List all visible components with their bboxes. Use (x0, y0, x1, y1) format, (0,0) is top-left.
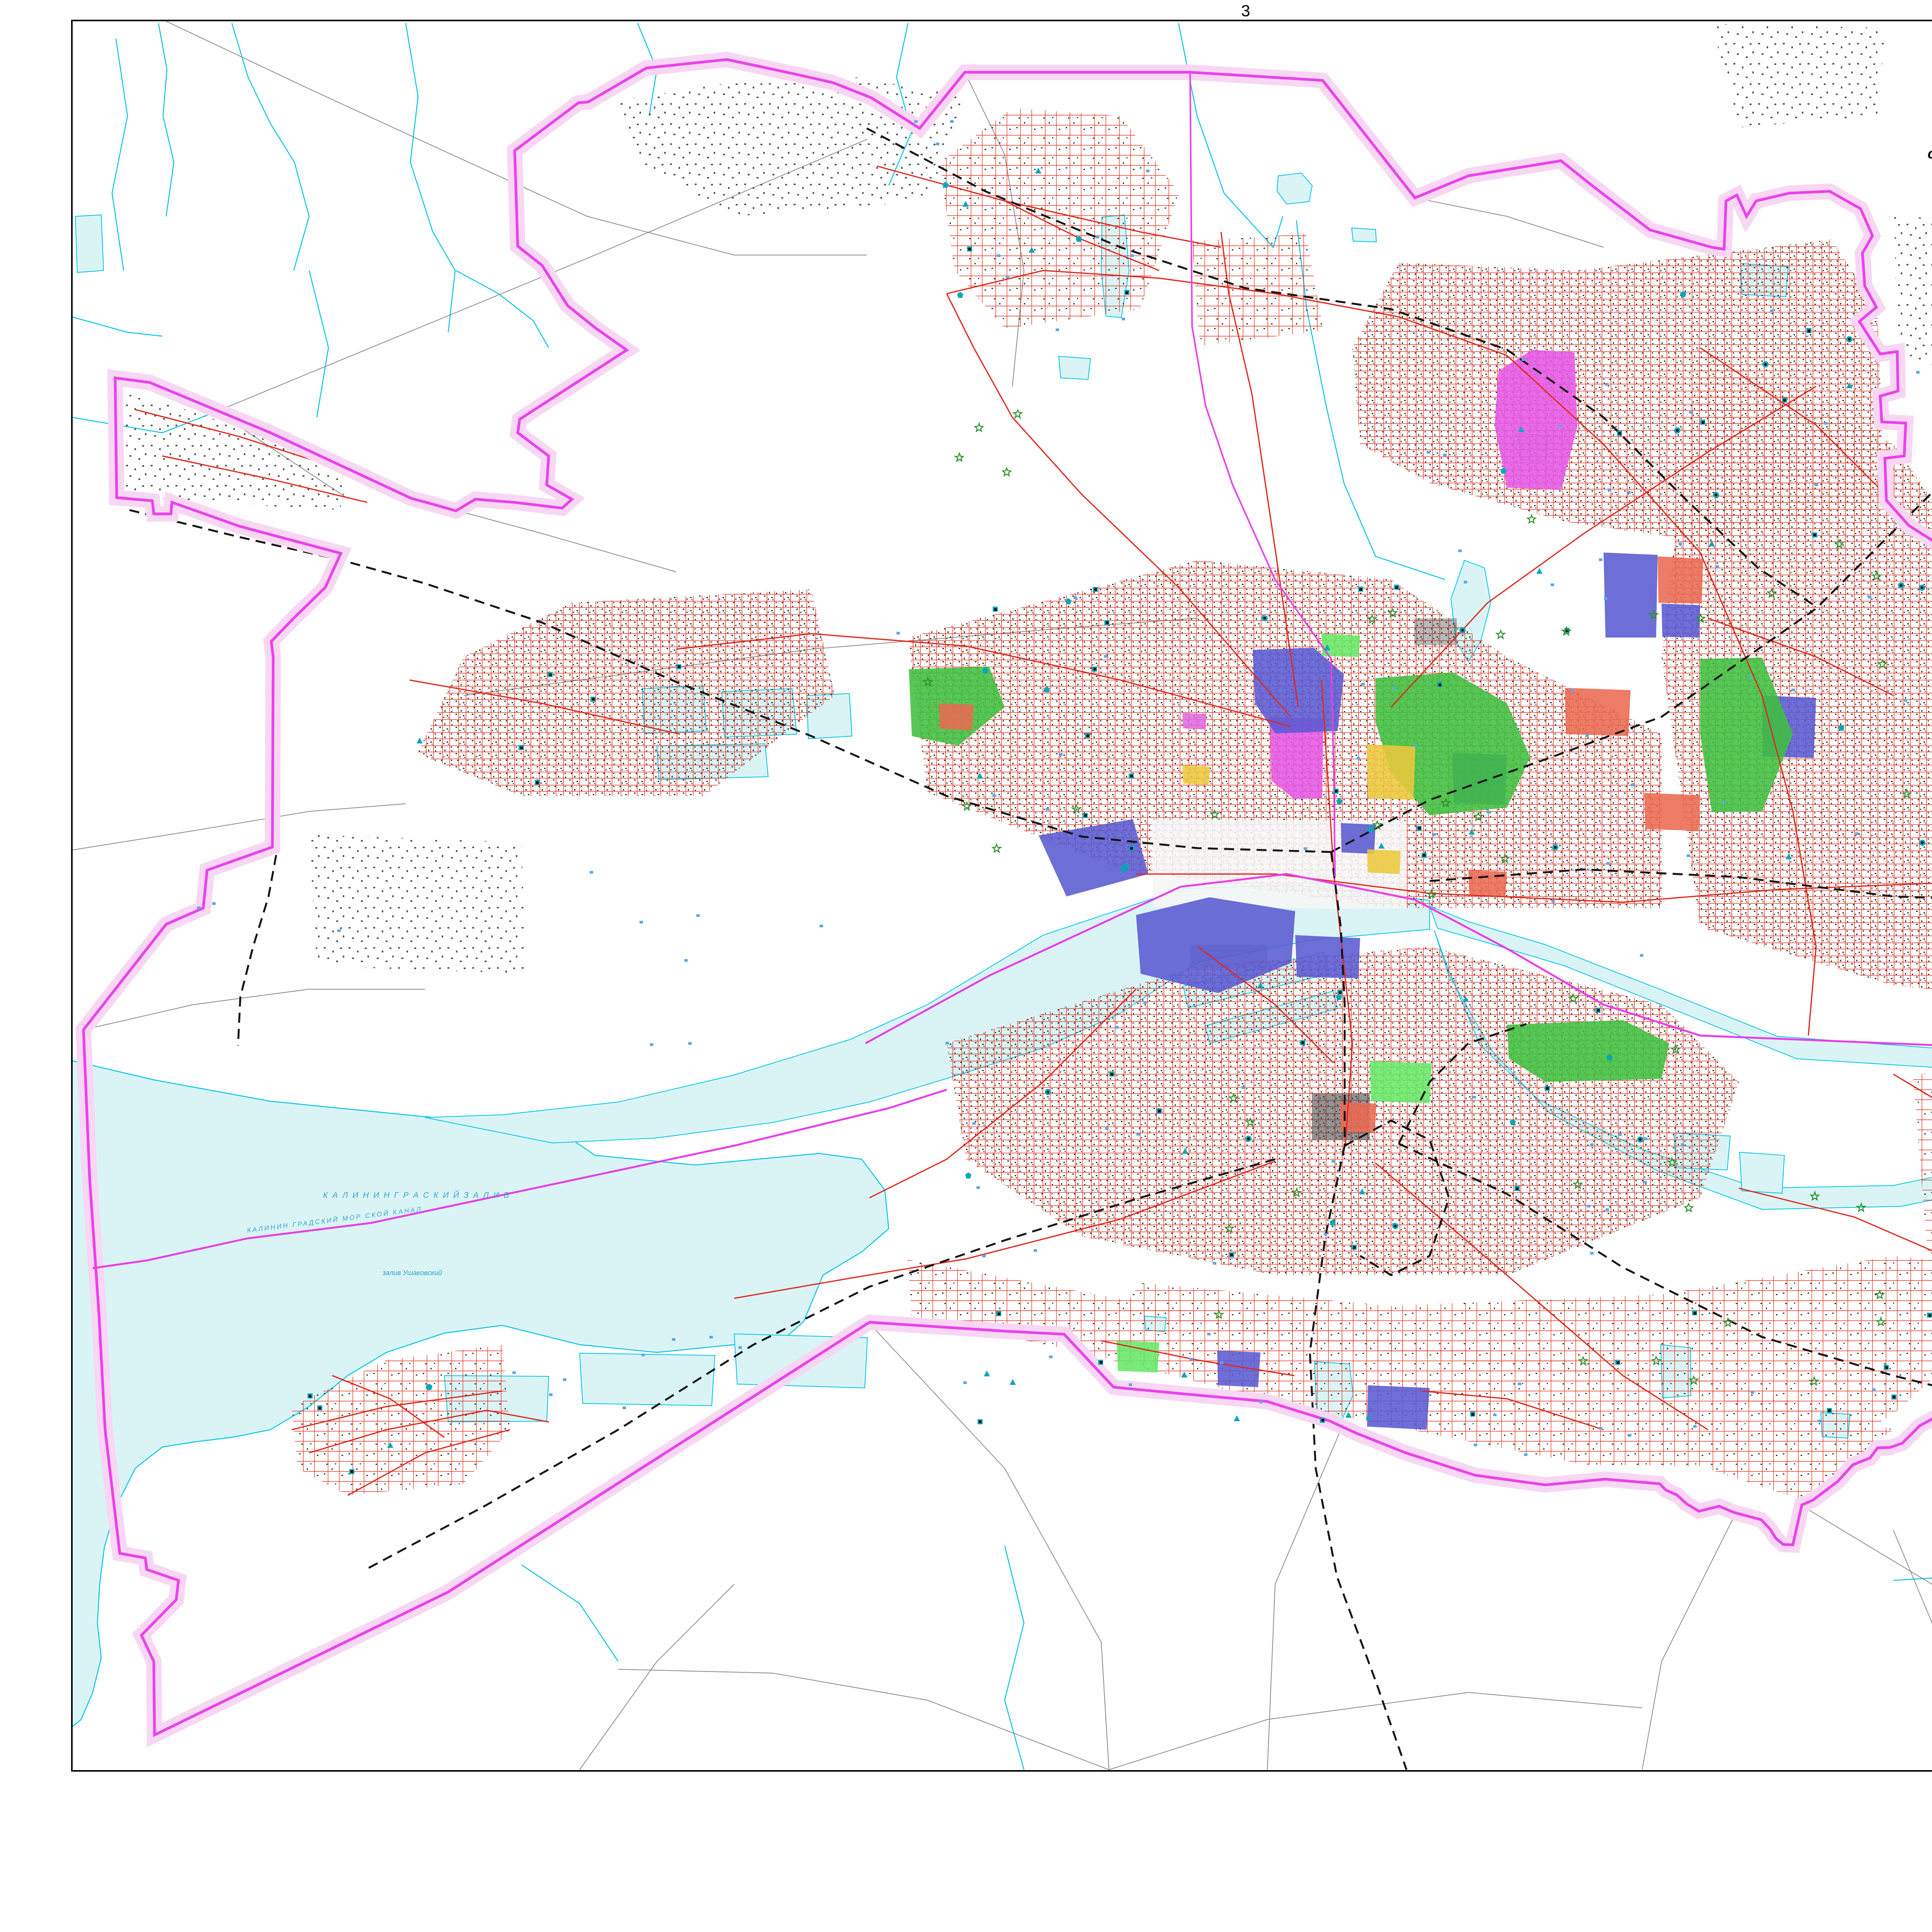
svg-text:3: 3 (1241, 2, 1250, 20)
svg-text:залив Ушаковский: залив Ушаковский (382, 1269, 442, 1277)
svg-text:с учетом территорий и зон охра: с учетом территорий и зон охраны объекто… (1927, 146, 1932, 162)
svg-text:К А Л И Н И Н Г Р А С К И Й: К А Л И Н И Н Г Р А С К И Й З А Л И В (323, 1191, 510, 1200)
